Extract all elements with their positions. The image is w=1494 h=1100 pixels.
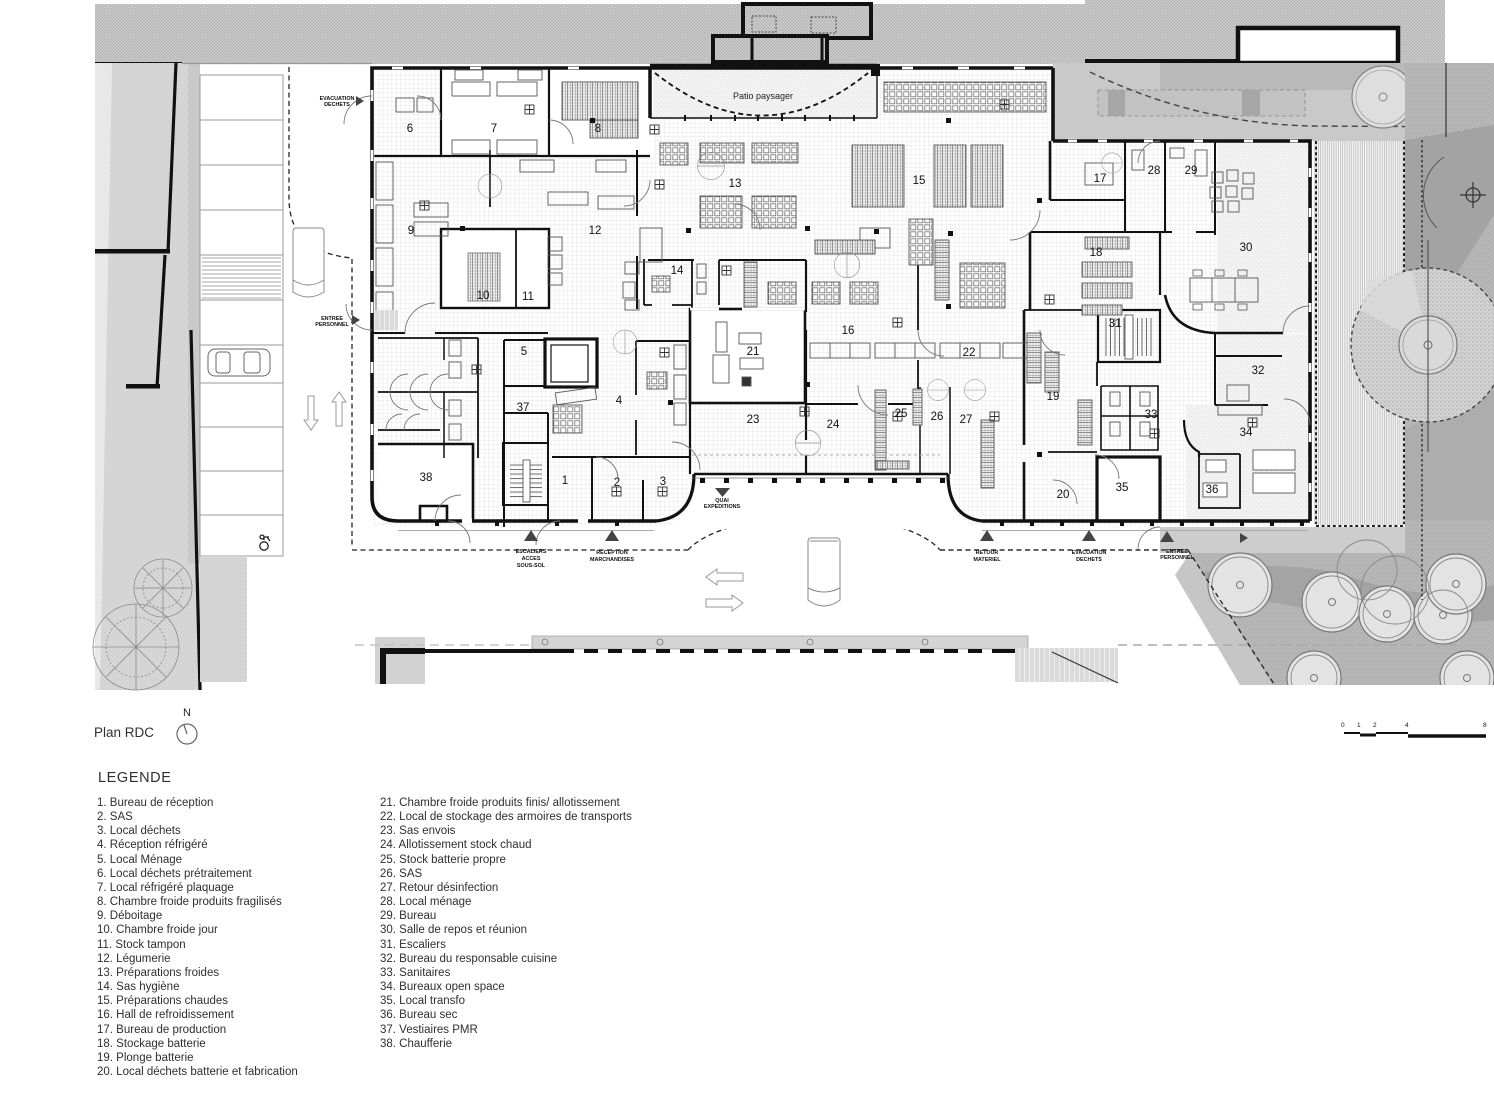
svg-text:N: N [183,707,191,719]
svg-text:4: 4 [1405,722,1409,729]
svg-text:36: 36 [1206,484,1219,496]
svg-text:24: 24 [827,419,840,431]
svg-text:ESCALIERS: ESCALIERS [516,549,547,555]
svg-text:31: 31 [1109,318,1122,330]
svg-text:14: 14 [671,265,684,277]
svg-text:8: 8 [595,123,601,135]
svg-text:21: 21 [747,346,760,358]
svg-text:SOUS-SOL: SOUS-SOL [517,563,546,569]
svg-text:ACCES: ACCES [522,556,541,562]
svg-text:23: 23 [747,414,760,426]
svg-text:28: 28 [1148,165,1161,177]
svg-text:4: 4 [616,395,623,407]
svg-text:22: 22 [963,347,976,359]
svg-text:37: 37 [517,402,530,414]
svg-text:EXPEDITIONS: EXPEDITIONS [704,504,741,510]
svg-text:17: 17 [1094,173,1107,185]
svg-text:1: 1 [562,475,568,487]
svg-text:16: 16 [842,325,855,337]
svg-text:27: 27 [960,414,973,426]
svg-text:DECHETS: DECHETS [1076,557,1102,563]
svg-text:DECHETS: DECHETS [324,102,350,108]
svg-text:7: 7 [491,123,497,135]
svg-text:13: 13 [729,178,742,190]
svg-text:33: 33 [1145,409,1158,421]
svg-text:2: 2 [1373,722,1377,729]
svg-text:18: 18 [1090,247,1103,259]
svg-text:34: 34 [1240,427,1253,439]
svg-text:25: 25 [895,408,908,420]
svg-text:3: 3 [660,476,666,488]
svg-text:19: 19 [1047,391,1060,403]
svg-text:15: 15 [913,175,926,187]
svg-text:Patio paysager: Patio paysager [733,91,793,101]
svg-text:12: 12 [589,225,602,237]
svg-text:9: 9 [408,225,414,237]
svg-text:10: 10 [477,290,490,302]
svg-text:EVACUATION: EVACUATION [1072,550,1107,556]
svg-text:6: 6 [407,123,413,135]
svg-text:PERSONNEL: PERSONNEL [315,322,349,328]
svg-text:MARCHANDISES: MARCHANDISES [590,557,634,563]
svg-text:11: 11 [522,291,534,303]
svg-text:30: 30 [1240,242,1253,254]
svg-text:26: 26 [931,411,944,423]
svg-text:RETOUR: RETOUR [976,550,999,556]
svg-text:20: 20 [1057,489,1070,501]
svg-text:0: 0 [1341,722,1345,729]
svg-text:MATERIEL: MATERIEL [973,557,1001,563]
svg-text:RECEPTION: RECEPTION [596,550,628,556]
svg-text:35: 35 [1116,482,1129,494]
svg-text:1: 1 [1357,722,1361,729]
svg-text:32: 32 [1252,365,1265,377]
svg-text:29: 29 [1185,165,1198,177]
svg-text:2: 2 [614,477,620,489]
svg-text:PERSONNEL: PERSONNEL [1160,555,1194,561]
svg-text:8: 8 [1483,722,1487,729]
svg-text:38: 38 [420,472,433,484]
svg-text:5: 5 [521,346,527,358]
